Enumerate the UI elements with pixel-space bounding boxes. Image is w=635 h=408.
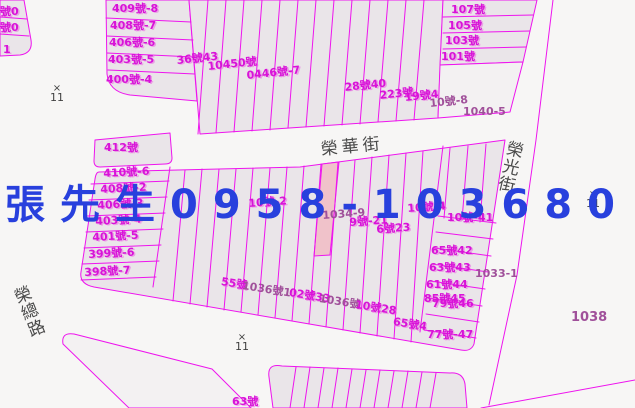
watermark-phone-text: 張先生0958-103680: [5, 172, 630, 230]
street-label-ronghua: 榮華街: [320, 135, 385, 160]
street-label-rongzong: 榮總路: [8, 284, 46, 341]
cadastral-map[interactable]: 號0號01409號-8408號-7406號-6403號-5400號-436號43…: [0, 0, 635, 408]
